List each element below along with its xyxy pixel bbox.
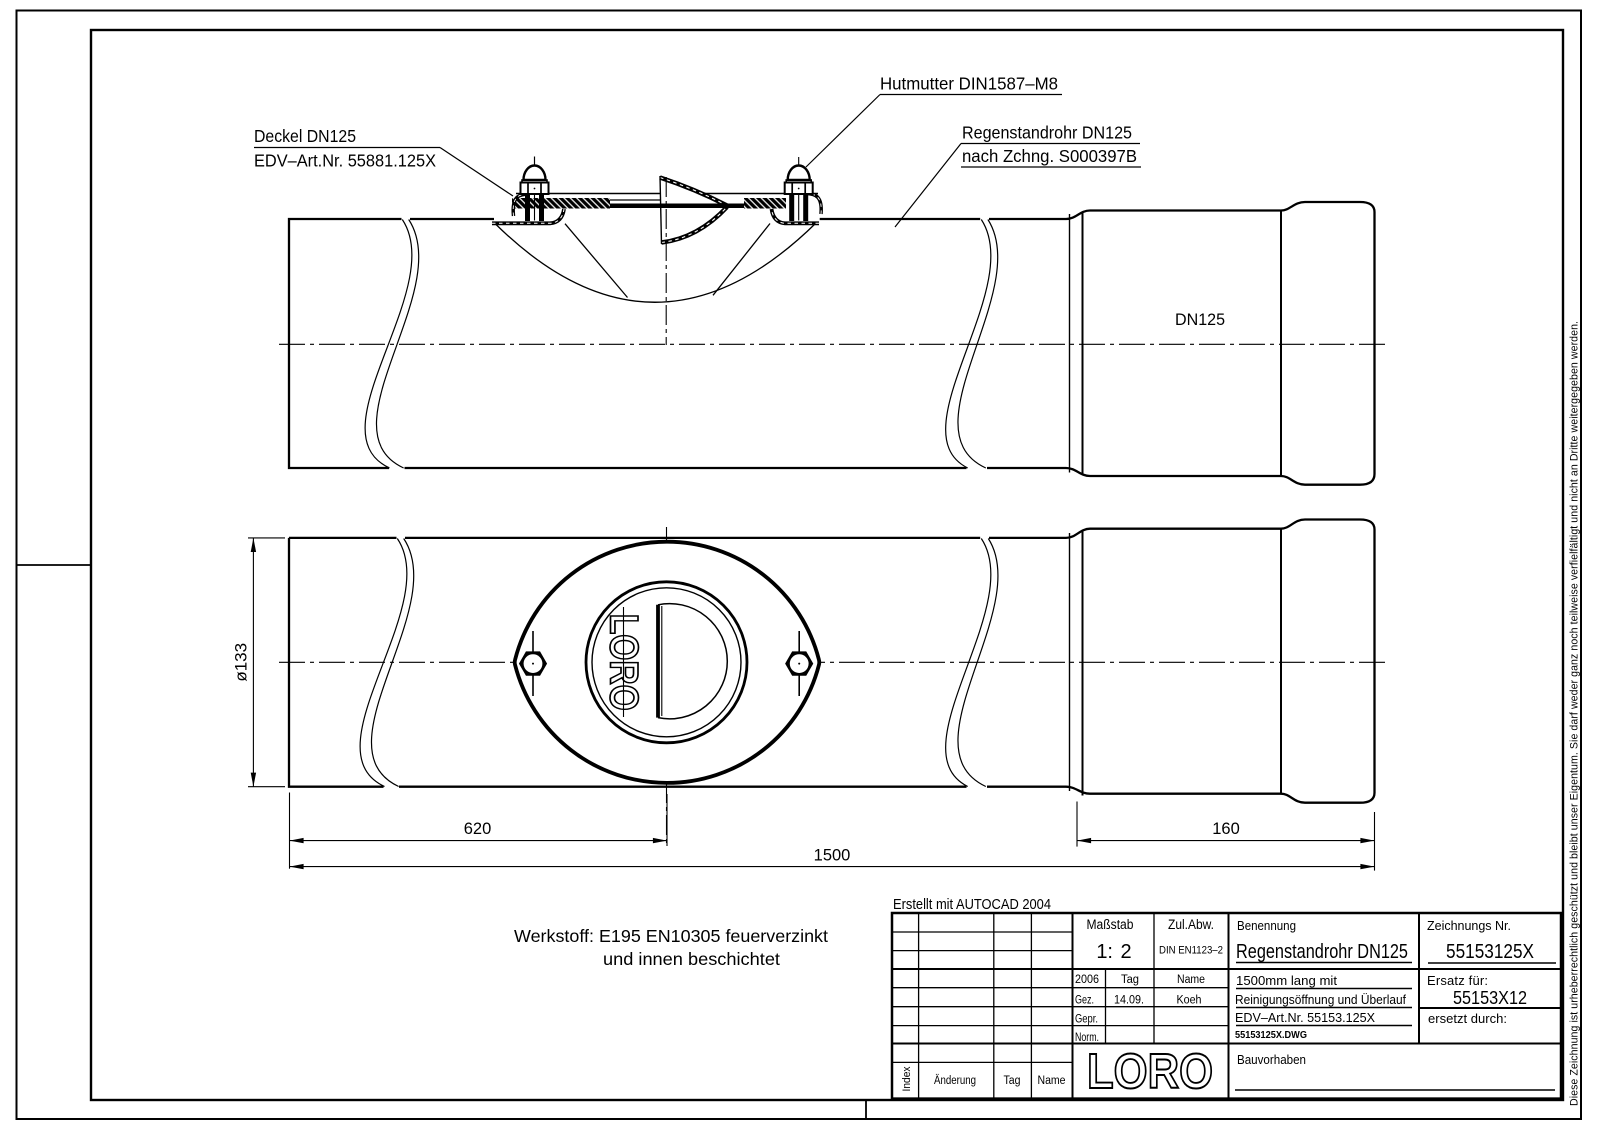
svg-text:und innen beschichtet: und innen beschichtet xyxy=(603,949,780,969)
svg-text:Name: Name xyxy=(1177,974,1205,986)
svg-text:Änderung: Änderung xyxy=(934,1075,976,1087)
svg-text:Ersatz für:: Ersatz für: xyxy=(1427,973,1488,988)
svg-text:Zul.Abw.: Zul.Abw. xyxy=(1168,917,1214,932)
svg-text:14.09.: 14.09. xyxy=(1114,995,1144,1007)
svg-text:EDV–Art.Nr. 55153.125X: EDV–Art.Nr. 55153.125X xyxy=(1235,1010,1375,1025)
svg-text:1: 2: 1: 2 xyxy=(1096,941,1131,963)
svg-text:Hutmutter DIN1587–M8: Hutmutter DIN1587–M8 xyxy=(880,74,1058,94)
svg-text:Zeichnungs Nr.: Zeichnungs Nr. xyxy=(1427,919,1511,933)
svg-text:Name: Name xyxy=(1038,1075,1066,1087)
svg-text:Index: Index xyxy=(901,1066,913,1091)
svg-text:Tag: Tag xyxy=(1121,974,1139,986)
svg-text:LORO: LORO xyxy=(1087,1045,1213,1099)
svg-text:Regenstandrohr DN125: Regenstandrohr DN125 xyxy=(1236,941,1408,963)
svg-text:ø133: ø133 xyxy=(232,643,251,682)
svg-text:EDV–Art.Nr. 55881.125X: EDV–Art.Nr. 55881.125X xyxy=(254,151,436,171)
svg-text:Werkstoff: E195 EN10305 feu: Werkstoff: E195 EN10305 feuerverzinkt xyxy=(514,926,828,946)
svg-text:Diese Zeichnung ist urheberrec: Diese Zeichnung ist urheberrechtlich ges… xyxy=(1569,321,1581,1106)
svg-text:Regenstandrohr DN125: Regenstandrohr DN125 xyxy=(962,123,1132,143)
svg-text:ersetzt durch:: ersetzt durch: xyxy=(1428,1011,1507,1026)
svg-text:DN125: DN125 xyxy=(1175,310,1225,329)
svg-text:55153125X: 55153125X xyxy=(1446,941,1534,963)
svg-text:Norm.: Norm. xyxy=(1075,1032,1099,1044)
svg-text:DIN EN1123–2: DIN EN1123–2 xyxy=(1159,945,1223,957)
svg-text:Erstellt mit AUTOCAD 2004: Erstellt mit AUTOCAD 2004 xyxy=(893,896,1051,913)
svg-text:Benennung: Benennung xyxy=(1237,919,1296,933)
svg-text:Maßstab: Maßstab xyxy=(1087,917,1134,932)
svg-text:2006: 2006 xyxy=(1075,974,1099,986)
svg-text:1500mm lang mit: 1500mm lang mit xyxy=(1236,973,1337,988)
svg-text:55153125X.DWG: 55153125X.DWG xyxy=(1235,1029,1307,1041)
svg-text:55153X12: 55153X12 xyxy=(1453,988,1527,1008)
svg-text:Gepr.: Gepr. xyxy=(1075,1014,1098,1026)
svg-text:Gez.: Gez. xyxy=(1075,995,1094,1007)
svg-text:Tag: Tag xyxy=(1004,1075,1021,1087)
svg-text:Koeh: Koeh xyxy=(1177,995,1202,1007)
svg-text:Deckel DN125: Deckel DN125 xyxy=(254,126,356,146)
svg-text:Bauvorhaben: Bauvorhaben xyxy=(1237,1053,1306,1067)
svg-text:Reinigungsöffnung und Überlauf: Reinigungsöffnung und Überlauf xyxy=(1235,992,1406,1007)
svg-text:1500: 1500 xyxy=(814,847,851,865)
svg-text:nach Zchng. S000397B: nach Zchng. S000397B xyxy=(962,146,1137,166)
svg-text:620: 620 xyxy=(464,820,492,838)
svg-text:160: 160 xyxy=(1212,820,1240,838)
